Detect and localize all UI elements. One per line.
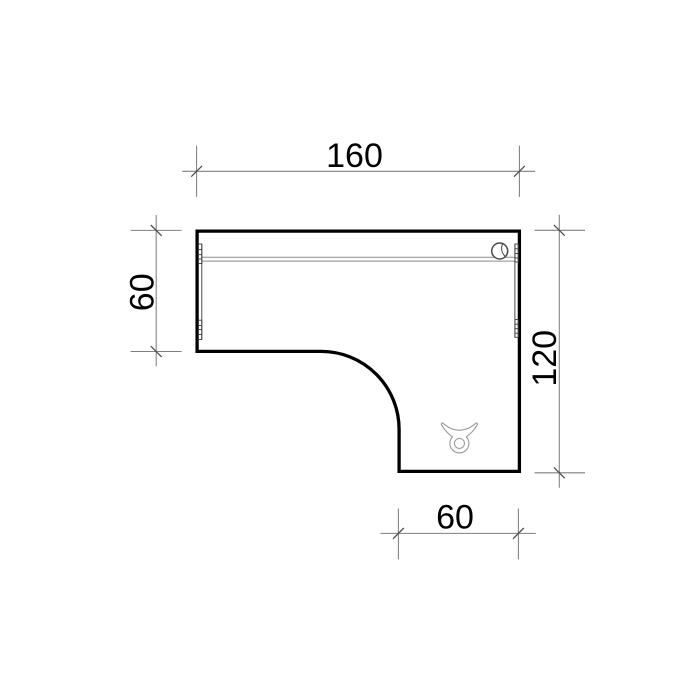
svg-text:120: 120 xyxy=(526,330,564,387)
svg-text:160: 160 xyxy=(326,137,383,175)
svg-text:60: 60 xyxy=(123,273,161,311)
svg-text:60: 60 xyxy=(436,498,474,536)
